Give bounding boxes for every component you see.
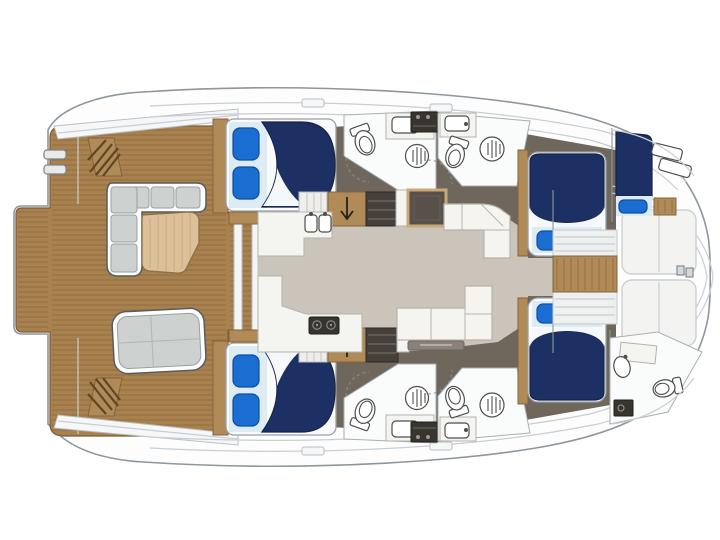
cooktop-icon <box>309 317 339 334</box>
galley-sink-icon <box>319 215 331 232</box>
bed-pillow <box>233 167 259 199</box>
dinette-table <box>408 190 446 226</box>
cabinet <box>396 190 408 226</box>
duvet <box>530 154 604 223</box>
deck-plan-page <box>0 0 720 540</box>
appliance <box>411 112 438 132</box>
appliance <box>614 400 633 416</box>
cockpit-lounger <box>111 308 206 375</box>
catamaran-deck-plan <box>0 0 720 540</box>
shower-drain-icon <box>406 145 429 168</box>
sink-icon <box>445 116 469 131</box>
bed-pillow <box>233 128 259 160</box>
galley-sink-icon <box>305 215 317 232</box>
shower-drain-icon <box>480 137 504 161</box>
deck-hatch <box>302 99 324 107</box>
bed-pillow <box>619 200 647 213</box>
foredeck-walkway <box>553 230 617 324</box>
